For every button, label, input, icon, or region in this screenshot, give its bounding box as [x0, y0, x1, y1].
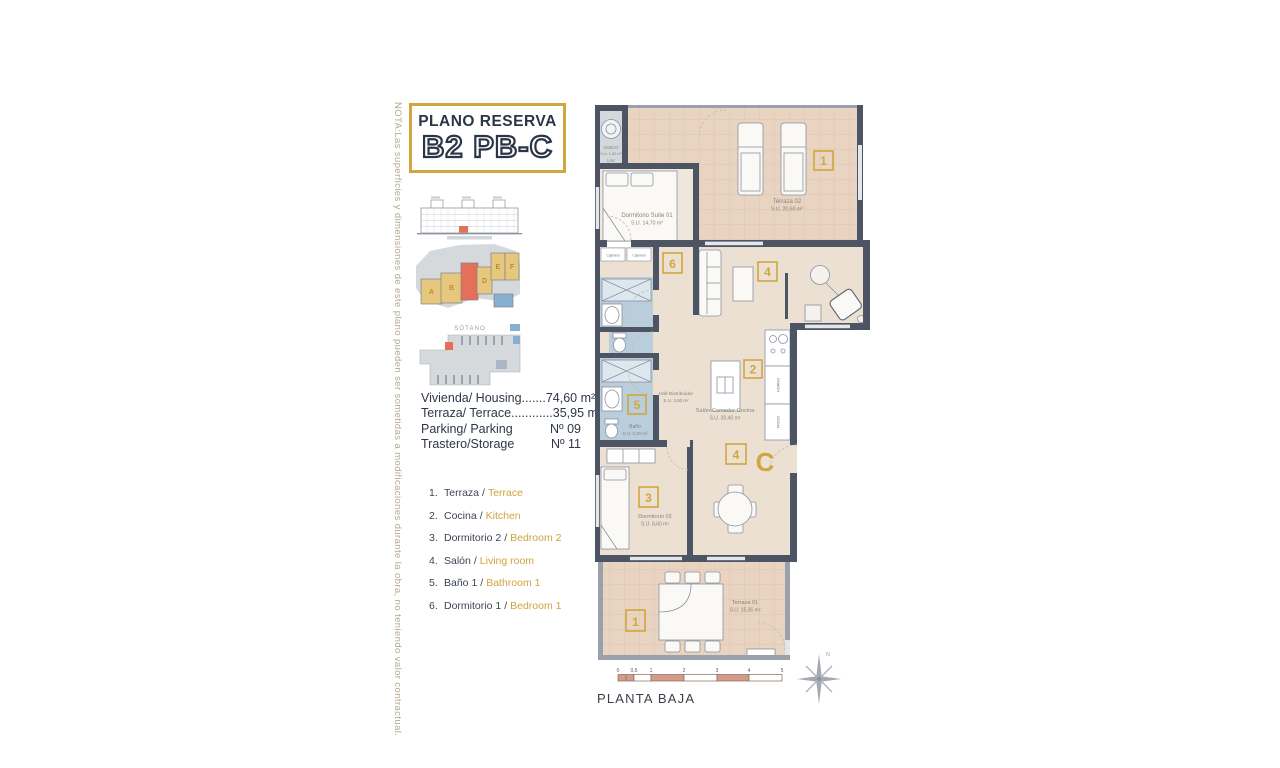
- badge-number: 1: [820, 154, 827, 168]
- legend-en: Kitchen: [486, 510, 521, 522]
- wall-study-right: [863, 240, 870, 330]
- block-letter-d: D: [482, 278, 487, 285]
- label-lav: LAV: [607, 158, 615, 163]
- legend-item-salon: 4. Salón / Living room: [429, 555, 589, 567]
- label-dorm02-area: S.U. 8,60 m²: [641, 522, 669, 528]
- compass-north-label: N: [826, 652, 830, 658]
- badge-number: 4: [733, 448, 740, 462]
- block-letter-a: A: [429, 289, 434, 296]
- legend-item-cocina: 2. Cocina / Kitchen: [429, 510, 589, 522]
- label-salon: Salón-Comedor-Cocina: [696, 408, 755, 414]
- info-row-housing: Vivienda/ Housing....... 74,60 m²: [421, 391, 581, 406]
- info-label: Vivienda/ Housing: [421, 391, 522, 406]
- label-hueco: HUECO: [603, 145, 619, 150]
- info-label: Trastero/Storage: [421, 437, 514, 452]
- block-blue: [494, 294, 513, 307]
- sun-lounger: [738, 123, 763, 195]
- scale-tick: 4: [748, 668, 751, 674]
- toilet-tank: [613, 333, 626, 338]
- badge-number: 2: [750, 363, 757, 377]
- info-label: Terraza/ Terrace: [421, 406, 511, 421]
- coffee-table: [733, 267, 753, 301]
- building-elevation-thumbnail: [417, 195, 522, 241]
- outdoor-table: [659, 584, 723, 640]
- ground-line: [417, 233, 522, 234]
- chair: [665, 572, 680, 583]
- scale-bar: 0 0.5 1 2 3 4 5: [597, 666, 787, 692]
- label-hall-area: S.U. 3,60 m²: [663, 398, 689, 403]
- badge-number: 3: [645, 491, 652, 505]
- block-letter-e: E: [496, 264, 501, 271]
- terrace2-top-wall: [628, 105, 857, 108]
- legend-item-bano: 5. Baño 1 / Bathroom 1: [429, 577, 589, 589]
- label-terraza02: Terraza 02: [773, 199, 802, 205]
- legend-num: 5.: [429, 577, 444, 589]
- wall-dining-right: [790, 473, 797, 562]
- round-table: [811, 266, 830, 285]
- label-suite: Dormitorio Suite 01: [621, 213, 673, 219]
- scale-tick: 3: [716, 668, 719, 674]
- legend-sep: /: [482, 487, 485, 499]
- legend-num: 1.: [429, 487, 444, 499]
- badge-number: 1: [632, 615, 639, 629]
- elevation-label-mark: [431, 197, 440, 199]
- scale-segments: [618, 675, 782, 682]
- legend-en: Terrace: [488, 487, 523, 499]
- unit-letter: C: [756, 447, 775, 477]
- legend-en: Bedroom 1: [510, 600, 561, 612]
- wall-kitchen-right: [790, 323, 797, 445]
- legend-num: 3.: [429, 532, 444, 544]
- room-legend: 1. Terraza / Terrace 2. Cocina / Kitchen…: [429, 487, 589, 622]
- legend-item-terraza: 1. Terraza / Terrace: [429, 487, 589, 499]
- info-dots: ............: [511, 406, 553, 421]
- legend-en: Bedroom 2: [510, 532, 561, 544]
- badge-number: 6: [669, 257, 676, 271]
- label-terraza01: Terraza 01: [732, 600, 758, 606]
- chair: [705, 572, 720, 583]
- chair: [685, 641, 700, 652]
- highlighted-parking: [445, 342, 453, 350]
- wall-bath: [653, 395, 659, 440]
- toilet-tank: [605, 419, 618, 424]
- floor-plan: HUECO S.U. 1,60 m² LAV Dormitorio Suite …: [595, 105, 910, 667]
- sink: [605, 390, 619, 408]
- window-study: [805, 325, 850, 329]
- legend-es: Baño 1: [444, 577, 477, 589]
- compass-rose: N: [793, 648, 845, 706]
- legend-sep: /: [480, 510, 483, 522]
- elevation-label-mark: [493, 197, 502, 199]
- highlighted-unit: [459, 226, 468, 233]
- label-salon-area: S.U. 30,40 m²: [710, 416, 741, 422]
- badge-number: 4: [764, 265, 771, 279]
- info-label: Parking/ Parking: [421, 422, 513, 437]
- label-cajonera: Cajonera: [607, 254, 620, 258]
- door-mat: [747, 649, 775, 656]
- sotano-label: SÓTANO: [454, 325, 486, 332]
- wall-dorm2-right: [687, 447, 693, 555]
- legend-es: Dormitorio 2: [444, 532, 501, 544]
- label-horno: HORNO: [777, 378, 781, 392]
- elevation-label-mark: [462, 197, 471, 199]
- scale-tick: 0.5: [631, 668, 638, 674]
- unit-code: B2 PB-C: [416, 131, 559, 164]
- legend-es: Terraza: [444, 487, 479, 499]
- compass-center: [817, 677, 821, 681]
- label-bano: Baño: [629, 424, 641, 430]
- block-letter-b: B: [449, 285, 454, 292]
- chair: [685, 572, 700, 583]
- door-terrace1: [785, 640, 790, 655]
- wall-bottom: [595, 555, 797, 562]
- label-hueco-area: S.U. 1,60 m²: [600, 152, 622, 156]
- wall-bath: [653, 315, 659, 332]
- legend-num: 6.: [429, 600, 444, 612]
- sink: [605, 307, 619, 324]
- plan-title-box: PLANO RESERVA B2 PB-C: [409, 103, 566, 173]
- legend-num: 2.: [429, 510, 444, 522]
- label-terraza01-area: S.U. 15,35 m²: [730, 608, 761, 614]
- info-row-terrace: Terraza/ Terrace............ 35,95 m²: [421, 406, 581, 421]
- window-dorm2-terrace: [630, 557, 682, 560]
- info-value: Nº 11: [551, 437, 581, 452]
- label-dorm02: Dormitorio 02: [638, 514, 672, 520]
- wall-hall-living: [693, 247, 699, 315]
- disclaimer-note: NOTA:Las superficies y dimensiones de es…: [389, 102, 403, 642]
- legend-sep: /: [480, 577, 483, 589]
- wall: [622, 108, 628, 168]
- scale-tick: 1: [650, 668, 653, 674]
- wall-divider: [600, 353, 653, 358]
- scale-tick-labels: 0 0.5 1 2 3 4 5: [617, 668, 784, 674]
- window-dining-terrace: [707, 557, 745, 560]
- wall-suite-right: [693, 163, 699, 247]
- washing-machine: [602, 120, 621, 139]
- terrace1-left-wall: [598, 562, 603, 660]
- chair: [665, 641, 680, 652]
- info-dots: .......: [522, 391, 546, 406]
- label-bano-area: S.U. 3,40 m²: [622, 431, 648, 436]
- legend-en: Living room: [480, 555, 534, 567]
- info-row-parking: Parking/ Parking Nº 09: [421, 422, 581, 437]
- legend-sep: /: [504, 532, 507, 544]
- legend-num: 4.: [429, 555, 444, 567]
- badge-number: 5: [634, 398, 641, 412]
- wall: [595, 240, 607, 247]
- basement-thumbnail: SÓTANO: [418, 322, 522, 392]
- surfaces-info: Vivienda/ Housing....... 74,60 m² Terraz…: [421, 391, 581, 452]
- dining-table: [718, 492, 752, 526]
- tv-unit: [785, 273, 788, 319]
- window-dorm2: [596, 475, 599, 527]
- pillow: [631, 173, 653, 186]
- chair: [705, 641, 720, 652]
- scale-tick: 2: [683, 668, 686, 674]
- legend-item-dormitorio1: 6. Dormitorio 1 / Bedroom 1: [429, 600, 589, 612]
- legend-en: Bathroom 1: [486, 577, 540, 589]
- info-row-storage: Trastero/Storage Nº 11: [421, 437, 581, 452]
- label-terraza02-area: S.U. 20,60 m²: [771, 207, 803, 213]
- block-c-highlighted: [461, 263, 478, 300]
- wall-divider: [600, 327, 653, 332]
- pillow: [604, 469, 626, 480]
- wall: [690, 440, 693, 447]
- legend-sep: /: [504, 600, 507, 612]
- wall: [631, 240, 699, 247]
- info-value: 74,60 m²: [546, 391, 595, 406]
- floor-name: PLANTA BAJA: [597, 691, 695, 706]
- label-suite-area: S.U. 14,70 m²: [631, 221, 663, 227]
- legend-es: Cocina: [444, 510, 477, 522]
- block-letter-f: F: [510, 264, 515, 271]
- label-cajonera: Cajonera: [633, 254, 646, 258]
- pillow: [606, 173, 628, 186]
- info-value: Nº 09: [550, 422, 581, 437]
- side-table: [805, 305, 821, 321]
- base-plinth: [447, 236, 492, 240]
- wall-suite-top: [595, 163, 699, 169]
- scale-tick: 5: [781, 668, 784, 674]
- window-terrace2: [858, 145, 862, 200]
- window-suite: [596, 187, 599, 229]
- blue-cell: [513, 336, 520, 344]
- toilet: [606, 424, 618, 438]
- wall-bath: [653, 247, 659, 290]
- toilet: [614, 338, 626, 352]
- wall-dorm2-top: [595, 440, 667, 447]
- legend-es: Salón: [444, 555, 471, 567]
- kitchen-island: [711, 361, 740, 411]
- slider-living-terrace: [705, 242, 763, 246]
- legend-item-dormitorio2: 3. Dormitorio 2 / Bedroom 2: [429, 532, 589, 544]
- storage-cell: [496, 360, 507, 369]
- terrace1-bottom-wall: [598, 655, 790, 660]
- sun-lounger: [781, 123, 806, 195]
- blue-cell: [510, 324, 520, 331]
- legend-es: Dormitorio 1: [444, 600, 501, 612]
- label-hall: Hall-Distribuidor: [659, 391, 694, 397]
- legend-sep: /: [474, 555, 477, 567]
- scale-tick: 0: [617, 668, 620, 674]
- site-plan-thumbnail: A B D E F: [414, 242, 522, 320]
- label-frigo: FRIGO: [777, 416, 781, 428]
- wall-bath: [653, 353, 659, 370]
- wardrobe: [607, 449, 655, 463]
